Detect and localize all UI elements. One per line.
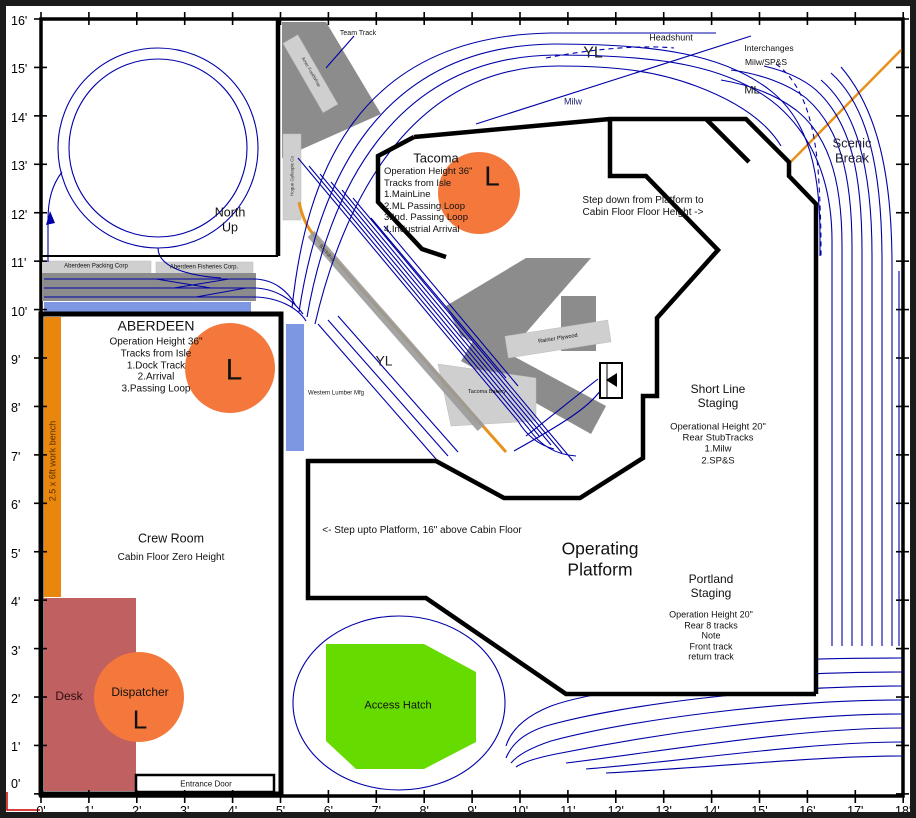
left-axis-label: 1' bbox=[11, 740, 20, 754]
ml-label: ML bbox=[744, 85, 759, 98]
western-lumber-label: Western Lumber Mfg bbox=[308, 390, 364, 397]
left-axis-label: 16' bbox=[11, 14, 27, 28]
left-axis-label: 6' bbox=[11, 498, 20, 512]
left-axis-label: 12' bbox=[11, 208, 27, 222]
tacoma-light-label: L bbox=[484, 159, 500, 192]
left-axis-label: 8' bbox=[11, 401, 20, 415]
headshunt-label: Headshunt bbox=[649, 33, 693, 44]
yl-top-label: YL bbox=[583, 45, 603, 64]
bottom-axis-label: 17' bbox=[847, 804, 863, 818]
tacoma-title: Tacoma bbox=[413, 150, 459, 165]
left-axis-label: 14' bbox=[11, 111, 27, 125]
work-bench-label: 2.5 x 6ft work bench bbox=[48, 421, 59, 502]
bottom-axis-label: 15' bbox=[751, 804, 767, 818]
bottom-axis-label: 2' bbox=[132, 804, 141, 818]
origin-mark bbox=[7, 792, 40, 810]
bottom-axis-label: 18' bbox=[895, 804, 911, 818]
left-axis-label: 5' bbox=[11, 547, 20, 561]
crew-room-subtitle: Cabin Floor Zero Height bbox=[118, 552, 225, 564]
bottom-axis-label: 3' bbox=[180, 804, 189, 818]
bottom-axis-label: 12' bbox=[608, 804, 624, 818]
tacoma-details: Operation Height 36" Tracks from Isle 1.… bbox=[384, 166, 472, 235]
bottom-axis-label: 16' bbox=[799, 804, 815, 818]
aberdeen-details: Operation Height 36" Tracks from Isle 1.… bbox=[109, 337, 202, 396]
left-axis-label: 10' bbox=[11, 305, 27, 319]
dispatcher-light-label: L bbox=[133, 705, 147, 736]
left-axis-label: 3' bbox=[11, 644, 20, 658]
bottom-axis-label: 6' bbox=[324, 804, 333, 818]
desk-label: Desk bbox=[55, 689, 82, 703]
left-axis-label: 7' bbox=[11, 450, 20, 464]
yl-mid-label: YL bbox=[375, 353, 392, 370]
bottom-axis-label: 14' bbox=[703, 804, 719, 818]
bottom-axis-label: 1' bbox=[84, 804, 93, 818]
bottom-axis-label: 0' bbox=[36, 804, 45, 818]
bottom-axis-label: 13' bbox=[656, 804, 672, 818]
bottom-axis-label: 7' bbox=[372, 804, 381, 818]
aberdeen-light-label: L bbox=[226, 352, 243, 387]
team-track-label: Team Track bbox=[340, 30, 376, 38]
bottom-axis-label: 10' bbox=[512, 804, 528, 818]
interchange-roads-label: Milw/SP&S bbox=[745, 57, 787, 67]
aberdeen-title: ABERDEEN bbox=[117, 318, 194, 335]
dispatcher-label: Dispatcher bbox=[111, 685, 168, 699]
left-axis-label: 13' bbox=[11, 159, 27, 173]
western-lumber-water bbox=[286, 324, 304, 451]
aberdeen-packing-label: Aberdeen Packing Corp bbox=[64, 263, 128, 270]
scenic-break-label: Scenic Break bbox=[823, 136, 881, 167]
portland-title: Portland Staging bbox=[689, 572, 734, 600]
step-down-note: Step down from Platform to Cabin Floor F… bbox=[582, 195, 703, 219]
bottom-axis-label: 9' bbox=[467, 804, 476, 818]
aberdeen-fisheries-label: Aberdeen Fisheries Corp. bbox=[170, 264, 238, 271]
bottom-axis-label: 4' bbox=[228, 804, 237, 818]
crew-room-title: Crew Room bbox=[138, 532, 204, 547]
left-axis-label: 15' bbox=[11, 62, 27, 76]
short-line-details: Operational Height 20" Rear StubTracks 1… bbox=[670, 422, 766, 467]
access-hatch-label: Access Hatch bbox=[364, 700, 431, 713]
left-axis-label: 11' bbox=[11, 256, 26, 270]
left-axis-label: 2' bbox=[11, 692, 20, 706]
left-axis-label: 4' bbox=[11, 595, 20, 609]
left-axis-origin: 0' bbox=[11, 777, 20, 791]
north-up-label: North Up bbox=[215, 205, 246, 235]
entrance-door-label: Entrance Door bbox=[180, 779, 232, 788]
bottom-axis-label: 8' bbox=[420, 804, 429, 818]
milw-label: Milw bbox=[564, 97, 582, 108]
bottom-axis-label: 5' bbox=[276, 804, 285, 818]
gyllespie-label: Hogue Gyllespie Co bbox=[289, 156, 294, 196]
track-plan-canvas: Team Track YL Headshunt Interchanges Mil… bbox=[0, 0, 916, 818]
bakery-label: Tacoma Bakery bbox=[468, 389, 506, 395]
left-axis-label: 9' bbox=[11, 353, 20, 367]
short-line-title: Short Line Staging bbox=[691, 382, 746, 410]
bottom-axis-label: 11' bbox=[560, 804, 575, 818]
interchanges-label: Interchanges bbox=[744, 43, 793, 53]
portland-details: Operation Height 20" Rear 8 tracks Note … bbox=[669, 609, 753, 662]
step-up-note: <- Step upto Platform, 16" above Cabin F… bbox=[322, 525, 522, 537]
operating-platform-label: Operating Platform bbox=[562, 538, 639, 579]
door-symbol bbox=[600, 363, 622, 398]
